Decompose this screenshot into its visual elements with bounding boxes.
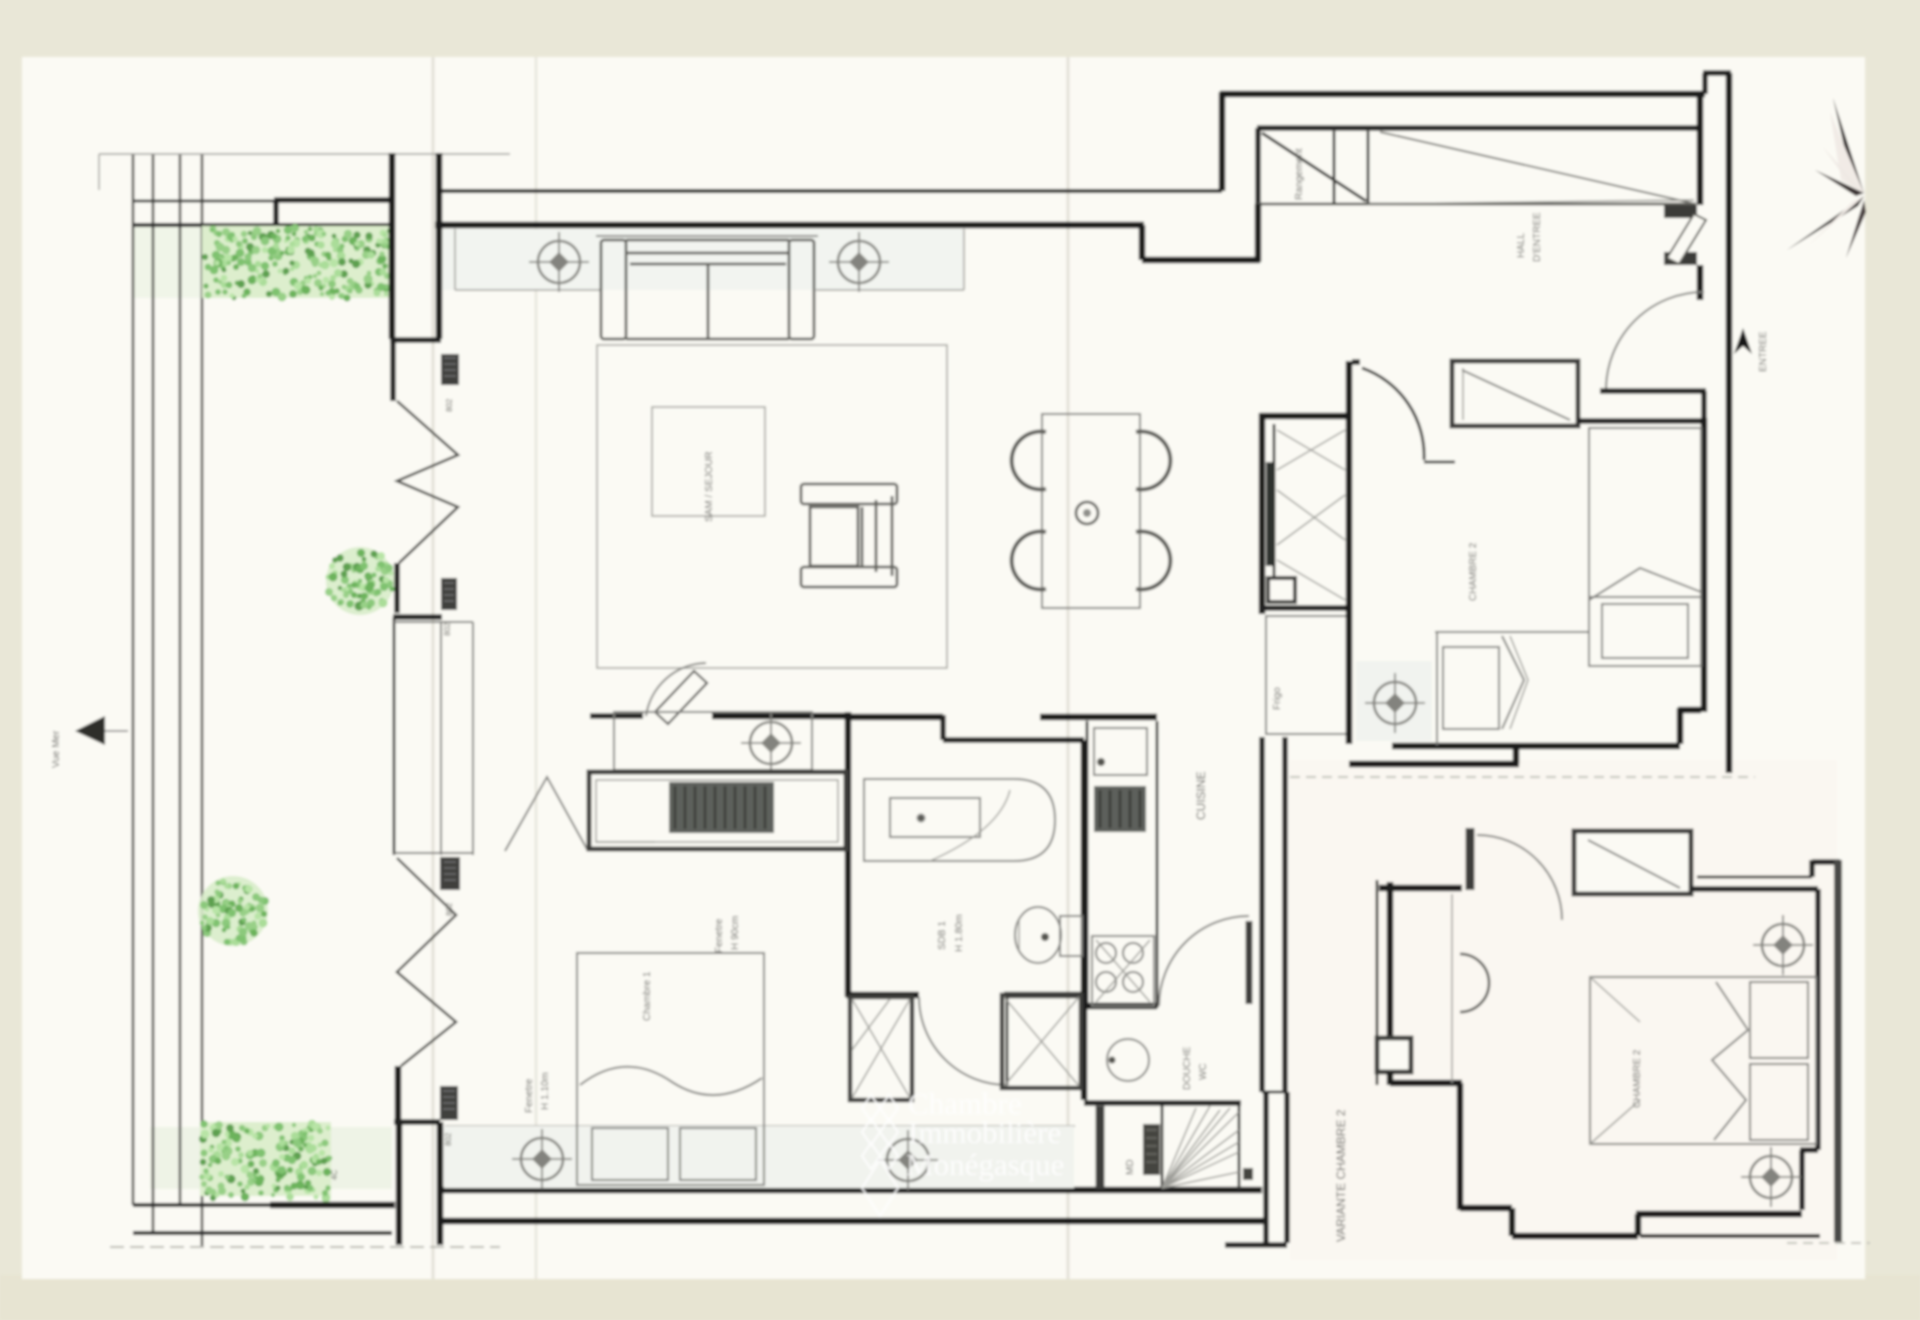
svg-text:802: 802 <box>445 398 454 412</box>
svg-text:Fenetre: Fenetre <box>714 918 725 953</box>
svg-text:H 1.10m: H 1.10m <box>540 1072 551 1110</box>
svg-text:802: 802 <box>445 902 454 916</box>
svg-text:H 90cm: H 90cm <box>730 916 741 950</box>
svg-text:Vue Mer: Vue Mer <box>51 730 62 768</box>
svg-text:WC: WC <box>1198 1063 1209 1080</box>
svg-text:4C: 4C <box>330 1170 339 1180</box>
svg-text:CUISINE: CUISINE <box>1194 771 1208 820</box>
svg-text:Immobilière: Immobilière <box>908 1115 1061 1150</box>
svg-text:CHAMBRE 2: CHAMBRE 2 <box>1632 1049 1643 1108</box>
svg-text:802: 802 <box>443 622 452 636</box>
svg-text:802: 802 <box>444 1132 453 1146</box>
svg-text:Monégasque: Monégasque <box>906 1147 1064 1182</box>
svg-text:Rangement: Rangement <box>1294 148 1305 200</box>
svg-text:H 1.80m: H 1.80m <box>954 914 965 952</box>
svg-text:DOUCHE: DOUCHE <box>1182 1046 1193 1090</box>
svg-text:Frigo: Frigo <box>1272 687 1283 710</box>
svg-text:MD: MD <box>1125 1159 1136 1175</box>
svg-text:VARIANTE CHAMBRE 2: VARIANTE CHAMBRE 2 <box>1334 1109 1348 1242</box>
svg-text:Chambre 1: Chambre 1 <box>642 971 653 1021</box>
svg-text:HALL: HALL <box>1516 233 1527 258</box>
svg-text:SDB 1: SDB 1 <box>937 921 948 950</box>
svg-text:D'ENTREE: D'ENTREE <box>1532 212 1543 262</box>
svg-text:Fenetre: Fenetre <box>524 1078 535 1113</box>
svg-text:ENTREE: ENTREE <box>1758 331 1769 372</box>
svg-text:SAM / SEJOUR: SAM / SEJOUR <box>704 451 715 522</box>
svg-text:CHAMBRE 2: CHAMBRE 2 <box>1468 542 1479 601</box>
